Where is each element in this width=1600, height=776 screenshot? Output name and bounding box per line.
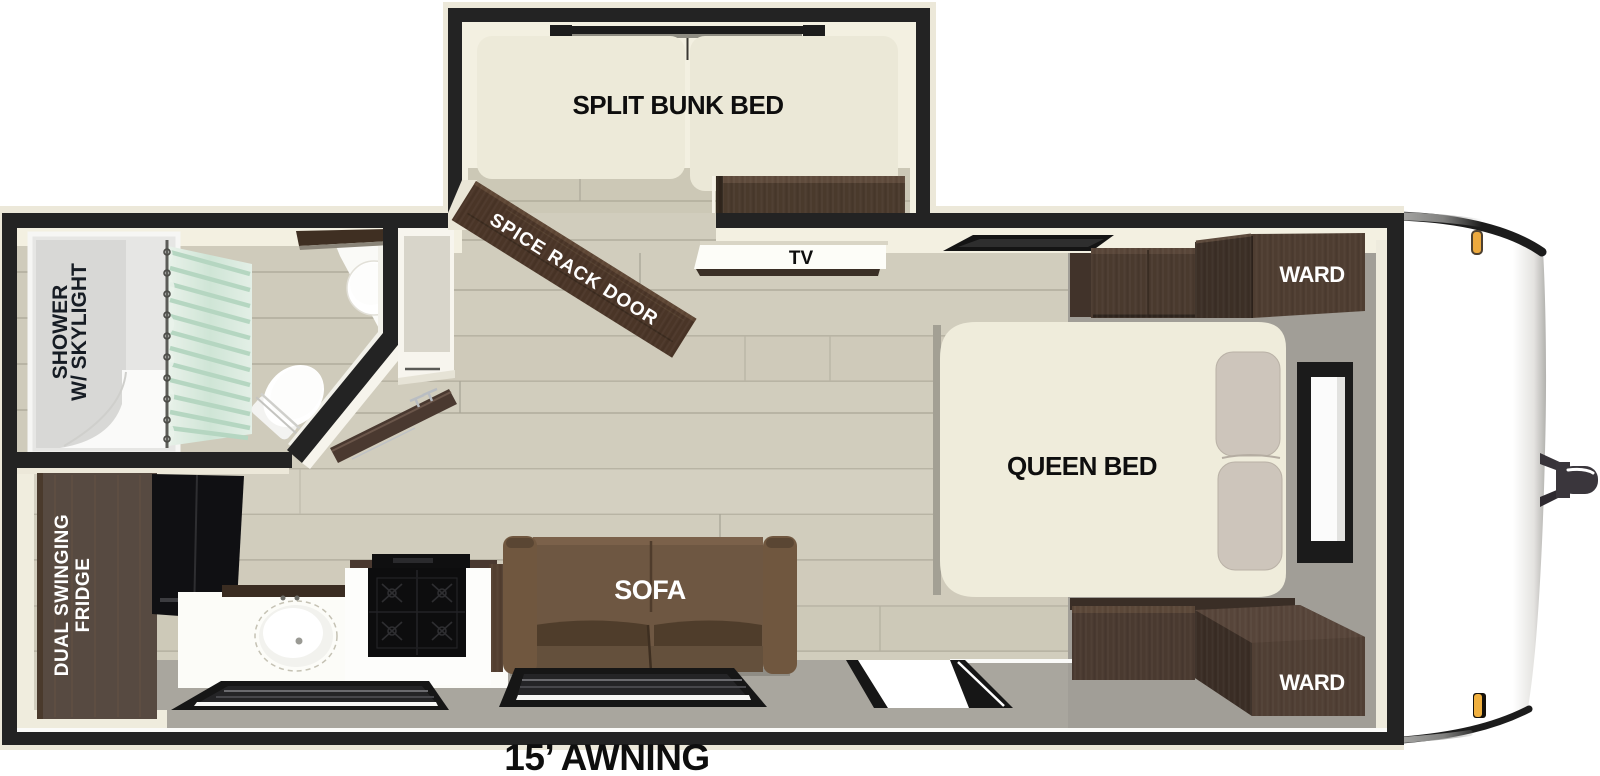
svg-text:WARD: WARD <box>1279 670 1344 695</box>
svg-text:SPLIT BUNK BED: SPLIT BUNK BED <box>572 90 783 120</box>
svg-text:SOFA: SOFA <box>614 575 686 605</box>
svg-text:WARD: WARD <box>1279 262 1344 287</box>
svg-text:15’ AWNING: 15’ AWNING <box>504 737 709 776</box>
svg-text:QUEEN BED: QUEEN BED <box>1007 451 1157 481</box>
svg-text:TV: TV <box>789 248 814 269</box>
